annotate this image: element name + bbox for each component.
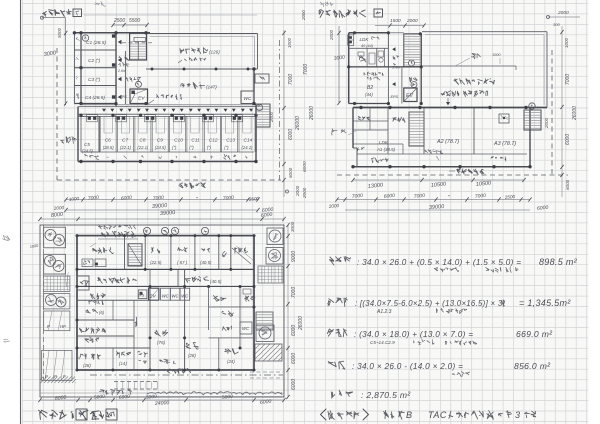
svg-text:C4 (28.5): C4 (28.5) bbox=[85, 95, 105, 101]
svg-text:9000: 9000 bbox=[291, 251, 297, 262]
svg-text:(24): (24) bbox=[227, 359, 235, 364]
svg-text:(126): (126) bbox=[209, 50, 220, 55]
svg-text:39000: 39000 bbox=[152, 203, 169, 210]
svg-text:= 1,345.5m²: = 1,345.5m² bbox=[519, 298, 571, 308]
svg-text:856.0 m²: 856.0 m² bbox=[514, 361, 551, 371]
svg-text:(22.5): (22.5) bbox=[150, 260, 162, 265]
svg-text:C2 ("): C2 (") bbox=[88, 58, 101, 64]
svg-text:8000: 8000 bbox=[55, 395, 67, 402]
svg-text:6000: 6000 bbox=[384, 193, 396, 200]
svg-text:(24.5): (24.5) bbox=[82, 149, 94, 154]
svg-text:6000: 6000 bbox=[565, 134, 571, 145]
svg-text:6000: 6000 bbox=[565, 179, 570, 190]
svg-text:39000: 39000 bbox=[160, 210, 177, 217]
svg-text:(22.1): (22.1) bbox=[120, 145, 132, 150]
svg-text:": " bbox=[196, 197, 198, 203]
svg-text:2000: 2000 bbox=[329, 29, 334, 41]
svg-text:7000: 7000 bbox=[223, 195, 235, 202]
svg-text:C9: C9 bbox=[157, 138, 163, 144]
svg-text:A2 (78.7): A2 (78.7) bbox=[436, 139, 459, 145]
svg-text:26000: 26000 bbox=[572, 106, 578, 121]
svg-text:6000: 6000 bbox=[291, 379, 297, 390]
svg-text:WC: WC bbox=[244, 96, 252, 101]
svg-text:(44): (44) bbox=[365, 92, 373, 97]
svg-text:EV: EV bbox=[150, 294, 157, 299]
svg-text:2.9m: 2.9m bbox=[392, 66, 401, 70]
svg-text:24000: 24000 bbox=[154, 400, 170, 407]
svg-text:1500: 1500 bbox=[390, 18, 401, 24]
svg-text:: [(34.0×7.5-6.0×2.5) + (13.0×: : [(34.0×7.5-6.0×2.5) + (13.0×16.5)] × 3 bbox=[355, 299, 503, 308]
svg-text:7000: 7000 bbox=[565, 74, 571, 85]
svg-text:40 (44): 40 (44) bbox=[361, 44, 374, 48]
svg-text:2000: 2000 bbox=[557, 10, 569, 16]
svg-text:3000: 3000 bbox=[290, 221, 295, 232]
svg-text:: 2,870.5 m²: : 2,870.5 m² bbox=[361, 390, 411, 400]
svg-text:5000: 5000 bbox=[222, 394, 234, 401]
svg-text:LDK: LDK bbox=[360, 37, 370, 42]
svg-text:6000: 6000 bbox=[288, 129, 294, 140]
svg-text:1000: 1000 bbox=[492, 53, 501, 57]
svg-text:HP: HP bbox=[60, 324, 66, 329]
svg-text:C3 ("): C3 (") bbox=[88, 77, 101, 83]
svg-text:(76): (76) bbox=[157, 340, 166, 345]
svg-text:B2: B2 bbox=[367, 85, 373, 91]
svg-text:5000: 5000 bbox=[57, 27, 62, 38]
svg-text:C7: C7 bbox=[122, 138, 128, 144]
svg-text:WC: WC bbox=[242, 326, 250, 331]
svg-text:": " bbox=[448, 195, 450, 201]
svg-text:2000: 2000 bbox=[295, 185, 300, 197]
svg-text:2000: 2000 bbox=[302, 187, 307, 199]
svg-text:5000: 5000 bbox=[146, 394, 158, 401]
svg-text:1000: 1000 bbox=[564, 37, 569, 48]
svg-text:(28.5): (28.5) bbox=[103, 145, 115, 150]
svg-text:6000: 6000 bbox=[261, 212, 273, 219]
svg-text:(147): (147) bbox=[206, 85, 217, 90]
svg-text:B: B bbox=[406, 410, 412, 420]
svg-text:: 34.0 × 26.0 - (14.0 × 2.0: : 34.0 × 26.0 - (14.0 × 2.0) = bbox=[352, 362, 463, 371]
svg-text:6000: 6000 bbox=[119, 394, 131, 401]
svg-text:2000: 2000 bbox=[544, 117, 549, 129]
svg-text:6000: 6000 bbox=[291, 353, 297, 364]
svg-text:7000: 7000 bbox=[303, 64, 309, 75]
svg-text:(40.5): (40.5) bbox=[210, 279, 222, 284]
svg-text:1000: 1000 bbox=[287, 37, 292, 48]
svg-text:7000: 7000 bbox=[414, 193, 426, 200]
svg-text:C5~14.C2.9: C5~14.C2.9 bbox=[370, 340, 395, 345]
svg-text:7000: 7000 bbox=[352, 193, 364, 200]
svg-text:C1 (28.5): C1 (28.5) bbox=[86, 40, 106, 46]
svg-text:TAC: TAC bbox=[428, 410, 447, 420]
svg-text:26000: 26000 bbox=[295, 116, 301, 131]
svg-text:: (34.0 × 18.0) + (13.0 × 7: : (34.0 × 18.0) + (13.0 × 7.0) = bbox=[354, 330, 473, 339]
svg-text:C14: C14 bbox=[244, 138, 253, 144]
svg-text:("): (") bbox=[172, 145, 177, 150]
svg-text:2.6m: 2.6m bbox=[117, 69, 126, 73]
svg-text:6000: 6000 bbox=[260, 399, 272, 406]
svg-text:6000: 6000 bbox=[121, 195, 133, 202]
svg-text:39000: 39000 bbox=[429, 204, 446, 211]
svg-text:WC: WC bbox=[162, 294, 170, 299]
svg-text:(22.1): (22.1) bbox=[137, 145, 149, 150]
svg-text:6000: 6000 bbox=[288, 167, 293, 178]
svg-text:EPS: EPS bbox=[120, 95, 128, 99]
svg-text:EV: EV bbox=[406, 93, 413, 99]
svg-text:C11: C11 bbox=[191, 138, 200, 144]
svg-text:26000: 26000 bbox=[298, 316, 304, 331]
svg-text:7000: 7000 bbox=[288, 74, 294, 85]
svg-text:LDK: LDK bbox=[379, 140, 389, 145]
svg-text:6000: 6000 bbox=[291, 325, 297, 336]
svg-text:300: 300 bbox=[553, 22, 560, 27]
svg-text:WC: WC bbox=[181, 294, 189, 299]
svg-text:("): (") bbox=[207, 145, 212, 150]
svg-text:SPS: SPS bbox=[138, 294, 146, 298]
svg-text:898.5 m²: 898.5 m² bbox=[539, 257, 578, 267]
svg-text:C13: C13 bbox=[226, 138, 235, 144]
svg-text:(14): (14) bbox=[119, 361, 127, 366]
svg-text:(28): (28) bbox=[83, 363, 91, 368]
svg-text:(40.5): (40.5) bbox=[200, 260, 212, 265]
svg-text:2000: 2000 bbox=[269, 111, 274, 123]
svg-text:C6: C6 bbox=[105, 138, 111, 144]
svg-text:EPS: EPS bbox=[391, 95, 399, 99]
svg-text:(6): (6) bbox=[99, 310, 105, 315]
svg-text:26000: 26000 bbox=[309, 106, 315, 121]
svg-text:EV: EV bbox=[138, 96, 145, 102]
svg-text:(24.5): (24.5) bbox=[155, 145, 167, 150]
svg-text:A3 (78.7): A3 (78.7) bbox=[493, 141, 516, 147]
svg-text:(28): (28) bbox=[188, 353, 196, 358]
svg-text:A1 (38.5): A1 (38.5) bbox=[376, 147, 396, 152]
svg-text:C8: C8 bbox=[139, 138, 145, 144]
svg-text:("): (") bbox=[189, 145, 194, 150]
svg-text:WC: WC bbox=[172, 294, 180, 299]
svg-text:C5: C5 bbox=[84, 142, 90, 147]
svg-text:6000: 6000 bbox=[537, 205, 549, 212]
svg-text:A1.2.3: A1.2.3 bbox=[376, 309, 392, 315]
svg-text:7000: 7000 bbox=[475, 193, 487, 200]
svg-text:2000: 2000 bbox=[406, 18, 418, 24]
svg-text:7000: 7000 bbox=[291, 287, 297, 298]
svg-text:5500: 5500 bbox=[129, 18, 140, 24]
svg-text:("): (") bbox=[224, 145, 229, 150]
svg-text:2000: 2000 bbox=[301, 10, 306, 21]
svg-text:C10: C10 bbox=[174, 138, 183, 144]
svg-text:3: 3 bbox=[515, 410, 520, 420]
svg-text:: 34.0 × 26.0 + (0.5 × 14.0): : 34.0 × 26.0 + (0.5 × 14.0) + (1.5 × 5.… bbox=[357, 258, 521, 267]
svg-text:669.0 m²: 669.0 m² bbox=[516, 329, 553, 339]
svg-text:7000: 7000 bbox=[153, 195, 165, 202]
svg-text:C12: C12 bbox=[209, 138, 218, 144]
svg-text:7000: 7000 bbox=[88, 195, 100, 202]
svg-text:2500: 2500 bbox=[113, 18, 125, 24]
svg-text:(24.1): (24.1) bbox=[242, 145, 254, 150]
svg-text:6000: 6000 bbox=[302, 161, 308, 172]
svg-text:5000: 5000 bbox=[94, 394, 106, 401]
svg-text:( 57 ): ( 57 ) bbox=[177, 260, 188, 265]
